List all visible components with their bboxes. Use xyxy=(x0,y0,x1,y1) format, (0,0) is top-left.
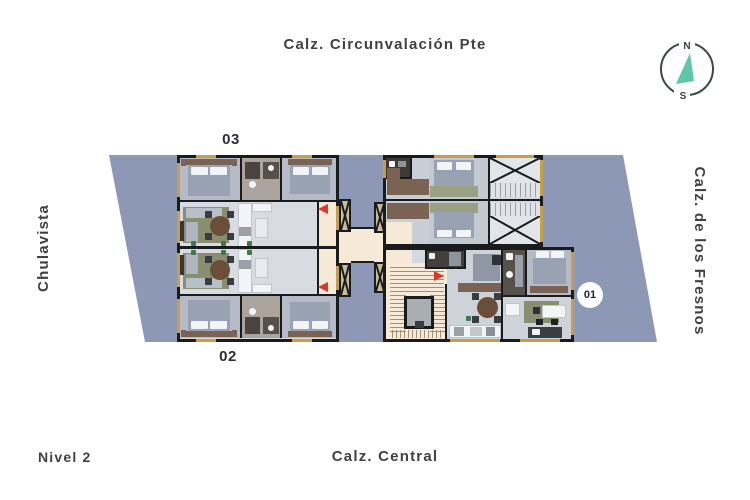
nightstand xyxy=(181,330,186,337)
window-sill xyxy=(177,253,180,287)
desk xyxy=(542,305,566,318)
chair xyxy=(205,211,212,218)
sink xyxy=(429,253,435,259)
chair xyxy=(205,256,212,263)
window-sill xyxy=(336,266,339,290)
chair xyxy=(227,233,234,240)
entry-marker xyxy=(318,204,328,214)
entry-marker xyxy=(318,282,328,292)
stair-treads xyxy=(392,330,442,338)
chair xyxy=(551,319,558,325)
window-sill xyxy=(571,252,574,290)
appliance xyxy=(239,260,251,269)
sofa xyxy=(186,222,198,242)
kitchen-counter xyxy=(252,284,272,293)
sink xyxy=(268,165,274,171)
compass-icon: N S xyxy=(658,36,718,102)
window-sill xyxy=(540,160,543,196)
window-sill xyxy=(292,155,312,158)
plant xyxy=(221,250,226,255)
window-sill xyxy=(177,163,180,197)
bridge-wall-bottom xyxy=(351,261,374,263)
pillow xyxy=(312,167,328,175)
dining-table xyxy=(477,297,498,318)
sink xyxy=(389,161,395,167)
sink xyxy=(506,253,513,260)
window-sill xyxy=(571,299,574,335)
dining-table xyxy=(210,260,230,280)
chair xyxy=(494,293,501,300)
kitchen-island xyxy=(255,218,268,238)
kitchen-counter xyxy=(252,203,272,212)
braced-column xyxy=(339,263,351,297)
sofa xyxy=(186,254,198,274)
chair xyxy=(227,278,234,285)
elevator-door xyxy=(415,321,424,328)
nightstand xyxy=(181,159,186,166)
plant xyxy=(247,250,252,255)
compass-needle xyxy=(676,53,694,84)
unit-01-badge[interactable]: 01 xyxy=(577,282,603,308)
pergola-hatch xyxy=(490,203,540,216)
chair xyxy=(536,319,543,325)
site-plan: Calz. Circunvalación Pte Chulavista Calz… xyxy=(0,0,750,500)
pillow xyxy=(437,230,452,237)
window-sill xyxy=(434,155,474,158)
chair xyxy=(227,256,234,263)
window-sill xyxy=(292,339,312,342)
level-label: Nivel 2 xyxy=(38,449,158,465)
shower xyxy=(515,255,523,287)
toilet xyxy=(506,271,513,278)
shower xyxy=(245,317,260,334)
unit-03-plan xyxy=(177,155,339,248)
rug xyxy=(430,186,478,197)
tv-console xyxy=(180,255,184,275)
chair xyxy=(533,307,540,314)
pillow xyxy=(456,162,471,170)
laptop xyxy=(532,329,540,335)
compass-north-label: N xyxy=(683,41,690,52)
pillow xyxy=(551,251,564,258)
pillow xyxy=(210,167,227,175)
void-terrace xyxy=(490,158,540,183)
pillow xyxy=(536,251,549,258)
pillow xyxy=(312,321,328,329)
chair xyxy=(205,278,212,285)
tv-console xyxy=(492,255,501,265)
shower xyxy=(449,252,461,266)
nightstand xyxy=(232,159,237,166)
chair xyxy=(494,316,501,323)
dresser xyxy=(530,286,568,293)
pillow xyxy=(456,230,471,237)
window-sill xyxy=(196,155,216,158)
wardrobe xyxy=(387,168,400,179)
pillow xyxy=(191,167,208,175)
chair xyxy=(227,211,234,218)
fixture xyxy=(398,161,406,167)
unit-02-label[interactable]: 02 xyxy=(198,348,258,365)
kitchen-island xyxy=(255,258,268,278)
appliance xyxy=(454,327,464,336)
street-label-top: Calz. Circunvalación Pte xyxy=(30,36,740,53)
chair xyxy=(205,233,212,240)
bed-headboard xyxy=(186,331,232,337)
compass-south-label: S xyxy=(680,91,687,102)
chair xyxy=(472,316,479,323)
appliance xyxy=(470,327,482,336)
chair xyxy=(472,293,479,300)
plant xyxy=(191,250,196,255)
unit-02-plan xyxy=(177,248,339,341)
window-sill xyxy=(177,299,180,333)
console-table xyxy=(458,283,502,292)
bridge-wall-top xyxy=(351,227,374,229)
window-sill xyxy=(496,155,534,158)
appliance xyxy=(486,327,495,336)
pergola-hatch xyxy=(490,183,540,197)
bridge-corridor xyxy=(339,228,386,263)
bed-headboard xyxy=(288,331,332,337)
pillow xyxy=(437,162,452,170)
sink xyxy=(268,325,274,331)
plant xyxy=(466,316,471,321)
unit-03-label[interactable]: 03 xyxy=(201,131,261,148)
window-sill xyxy=(540,206,543,242)
appliance xyxy=(239,227,251,236)
window-sill xyxy=(520,339,560,342)
pillow xyxy=(293,167,309,175)
corridor xyxy=(386,222,412,247)
side-table xyxy=(505,303,520,316)
entry-marker xyxy=(434,271,444,281)
window-sill xyxy=(177,211,180,243)
window-sill xyxy=(450,339,500,342)
window-sill xyxy=(196,339,216,342)
bed xyxy=(533,258,566,284)
window-sill xyxy=(336,206,339,230)
toilet xyxy=(249,308,256,315)
street-label-left: Chulavista xyxy=(35,173,53,323)
party-wall xyxy=(180,246,336,249)
pillow xyxy=(210,321,227,329)
braced-column xyxy=(339,199,351,232)
street-label-right: Calz. de los Fresnos xyxy=(690,146,708,356)
pillow xyxy=(191,321,208,329)
nightstand xyxy=(232,330,237,337)
toilet xyxy=(249,181,256,188)
void-terrace xyxy=(490,216,540,244)
tv-console xyxy=(180,221,184,241)
window-sill xyxy=(383,160,386,178)
pillow xyxy=(293,321,309,329)
shower xyxy=(245,162,260,179)
kitchen-counter xyxy=(238,249,252,293)
